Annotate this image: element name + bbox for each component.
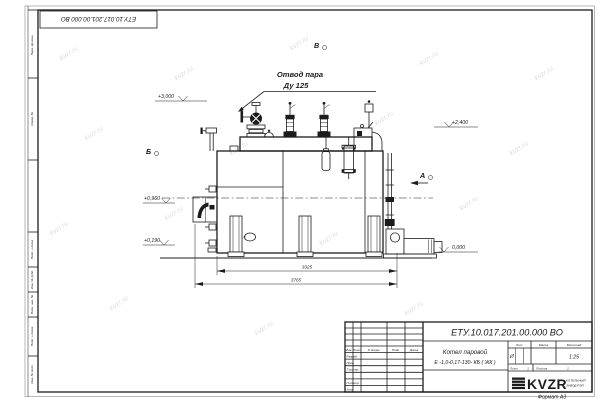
watermark: kvzr.ru xyxy=(419,50,440,67)
sheets-value: 2 xyxy=(566,366,569,370)
logo-bars-icon xyxy=(512,378,525,380)
flame-icon xyxy=(198,203,209,219)
sheet-label: Лист xyxy=(509,366,518,370)
dome-fitting xyxy=(265,130,274,137)
product-name-line1: Котел паровой xyxy=(443,349,488,356)
support-legs xyxy=(228,216,382,257)
sheets-label: Листов xyxy=(535,366,548,370)
elevation-3000: +3,000 xyxy=(158,94,174,100)
margin-label-podp2: Подп. и дата xyxy=(30,327,34,347)
watermark: kvzr.ru xyxy=(109,295,130,312)
watermark: kvzr.ru xyxy=(509,140,530,157)
sheet-edge xyxy=(25,6,595,397)
logo-text: KVZR xyxy=(527,376,567,392)
sheet-value: 1 xyxy=(527,366,529,370)
logo-sub2: ЗАВОД РЭП xyxy=(566,384,585,388)
watermark: kvzr.ru xyxy=(59,45,80,62)
drawing-sheet: kvzr.ru kvzr.ru kvzr.ru kvzr.ru kvzr.ru … xyxy=(0,0,600,400)
elevation-0960: +0,960 xyxy=(144,196,160,202)
elevation-chevron-icon xyxy=(162,198,171,203)
watermark: kvzr.ru xyxy=(164,205,185,222)
row-tkontr: Т.контр. xyxy=(347,368,360,372)
callout-line1: Отвод пара xyxy=(277,70,323,79)
watermark: kvzr.ru xyxy=(84,125,105,142)
blueprint-svg: kvzr.ru kvzr.ru kvzr.ru kvzr.ru kvzr.ru … xyxy=(0,0,600,400)
elevation-chevron-icon xyxy=(179,96,188,101)
col-header-date: Дата xyxy=(409,348,418,352)
left-wall-fittings xyxy=(205,186,216,252)
col-header-sign: Подп. xyxy=(392,348,400,352)
view-arrowhead-icon xyxy=(410,181,418,185)
view-label-top: В xyxy=(314,41,319,50)
logo-bars-icon xyxy=(512,387,525,389)
col-header-doc: N докум. xyxy=(368,348,381,352)
watermark: kvzr.ru xyxy=(319,230,340,247)
scale-label: Масштаб xyxy=(567,343,582,347)
sheet-frame xyxy=(25,6,595,397)
lit-value: И xyxy=(510,354,514,360)
watermark: kvzr.ru xyxy=(534,65,555,82)
logo-sub1: КОТЕЛЬНЫЙ xyxy=(566,379,586,383)
margin-column: Перв. примен. Справ. № Подп. и дата Инв.… xyxy=(28,10,38,384)
product-name-line2: Е -1,0-0,17-130- КБ ( ЖК ) xyxy=(434,360,496,366)
doc-number: ЕТУ.10.017.201.00.000 ВО xyxy=(451,328,563,338)
callout-leader xyxy=(239,92,264,112)
safety-valve-2 xyxy=(318,102,331,137)
mass-label: Масса xyxy=(539,343,548,347)
format-note: Формат А3 xyxy=(538,395,566,400)
watermark: kvzr.ru xyxy=(459,195,480,212)
steam-drum xyxy=(240,137,372,151)
logo-bars-icon xyxy=(512,381,525,383)
view-mark-icon xyxy=(155,152,159,156)
view-mark-icon xyxy=(429,176,433,180)
margin-label-podp1: Подп. и дата xyxy=(30,240,34,260)
scale-value: 1:25 xyxy=(569,355,579,361)
top-stamp: ЕТУ.10.017.201.00.000 ВО xyxy=(40,11,157,28)
row-razrab: Разраб. xyxy=(347,355,358,359)
dimension-outer: 3765 xyxy=(291,278,302,283)
lit-label: Лит. xyxy=(515,343,523,347)
row-nkontr: Н.контр. xyxy=(347,381,360,385)
logo-bars-icon xyxy=(512,384,525,386)
watermark: kvzr.ru xyxy=(289,35,310,52)
margin-label-podl: Инв. № подл. xyxy=(30,364,34,383)
margin-label-sprav: Справ. № xyxy=(30,111,34,126)
margin-label-vzam: Взам. инв. № xyxy=(30,294,34,314)
margin-label-dubl: Инв. № дубл. xyxy=(30,270,34,289)
view-mark-icon xyxy=(323,46,327,50)
watermark: kvzr.ru xyxy=(229,140,250,157)
title-block: Изм. Лист N докум. Подп. Дата Разраб. Пр… xyxy=(345,322,592,400)
watermark: kvzr.ru xyxy=(49,220,70,237)
row-utv: Утв. xyxy=(347,388,354,392)
level-gauge-1 xyxy=(322,137,330,171)
kvzr-logo: KVZR КОТЕЛЬНЫЙ ЗАВОД РЭП xyxy=(512,376,586,392)
watermark: kvzr.ru xyxy=(404,300,425,317)
steam-outlet-valve xyxy=(241,103,266,138)
elevation-0000: 0,000 xyxy=(452,245,465,251)
safety-valve-1 xyxy=(284,102,297,137)
boiler-drawing xyxy=(160,100,442,258)
view-label-left: Б xyxy=(146,147,151,156)
watermark: kvzr.ru xyxy=(174,65,195,82)
top-left-pipe xyxy=(201,128,217,152)
col-header-izm: Изм. xyxy=(346,348,353,352)
watermark: kvzr.ru xyxy=(254,320,275,337)
dimension-inner: 3325 xyxy=(302,265,313,270)
elevation-2400: +2,400 xyxy=(452,120,468,126)
row-prov: Пров. xyxy=(347,361,355,365)
view-label-right: А xyxy=(419,171,425,180)
elevation-0190: +0,190 xyxy=(144,238,160,244)
top-stamp-number: ЕТУ.10.017.201.00.000 ВО xyxy=(61,15,136,22)
manhole xyxy=(243,233,256,241)
col-header-list: Лист xyxy=(352,348,361,352)
margin-label-perv: Перв. примен. xyxy=(30,35,34,56)
elevation-chevron-icon xyxy=(160,240,169,245)
downcomer-pipe xyxy=(385,153,395,229)
callout-line2: Ду 125 xyxy=(283,81,309,90)
watermark: kvzr.ru xyxy=(374,110,395,127)
blower-fan xyxy=(384,229,443,258)
burner-box xyxy=(193,197,217,222)
